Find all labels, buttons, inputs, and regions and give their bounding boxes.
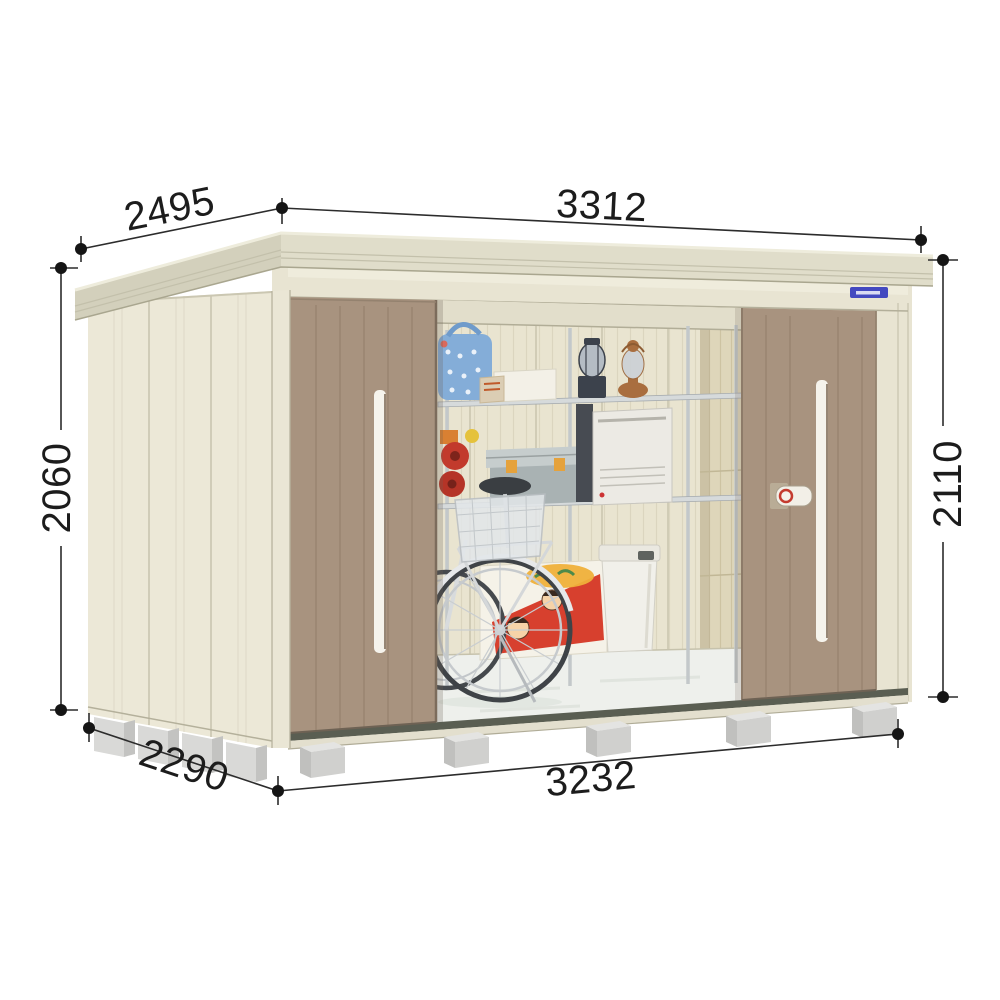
- container-latch: [554, 458, 565, 471]
- foundation-block: [444, 732, 489, 768]
- left-wall-face: [88, 291, 272, 748]
- opening-right-shadow: [735, 308, 742, 702]
- foundation-block: [852, 702, 897, 738]
- shed: [75, 233, 933, 782]
- left-sliding-door: [289, 297, 436, 733]
- right-sliding-door: [742, 308, 876, 700]
- bike-seat: [479, 477, 531, 495]
- waste-bin: [599, 545, 660, 652]
- interior-right-shadow: [700, 308, 710, 700]
- foundation-block: [726, 711, 771, 747]
- left-door-panel: [289, 297, 436, 733]
- dim-label-right-height: 2110: [926, 440, 970, 528]
- brand-logo-text-mark: [856, 291, 880, 295]
- foundation-block: [300, 742, 345, 778]
- bin-flap: [638, 551, 654, 560]
- left-side-wall: [88, 291, 272, 748]
- kerosene-heater: [576, 404, 672, 505]
- bicycle-basket: [455, 494, 545, 562]
- diagram-canvas: 2495 3312 2060 2110 2290 3232: [0, 0, 1000, 1000]
- dim-label-top-depth: 2495: [121, 179, 219, 240]
- foundation-block: [586, 721, 631, 757]
- dim-label-bottom-width: 3232: [543, 753, 638, 805]
- dim-label-top-width: 3312: [555, 182, 648, 230]
- shed-dimension-diagram: 2495 3312 2060 2110 2290 3232: [0, 0, 1000, 1000]
- corner-trim: [272, 290, 290, 748]
- dim-label-left-height: 2060: [35, 443, 79, 534]
- lock-ring: [780, 490, 792, 502]
- doorway-interior: [388, 300, 742, 724]
- container-latch: [506, 460, 517, 473]
